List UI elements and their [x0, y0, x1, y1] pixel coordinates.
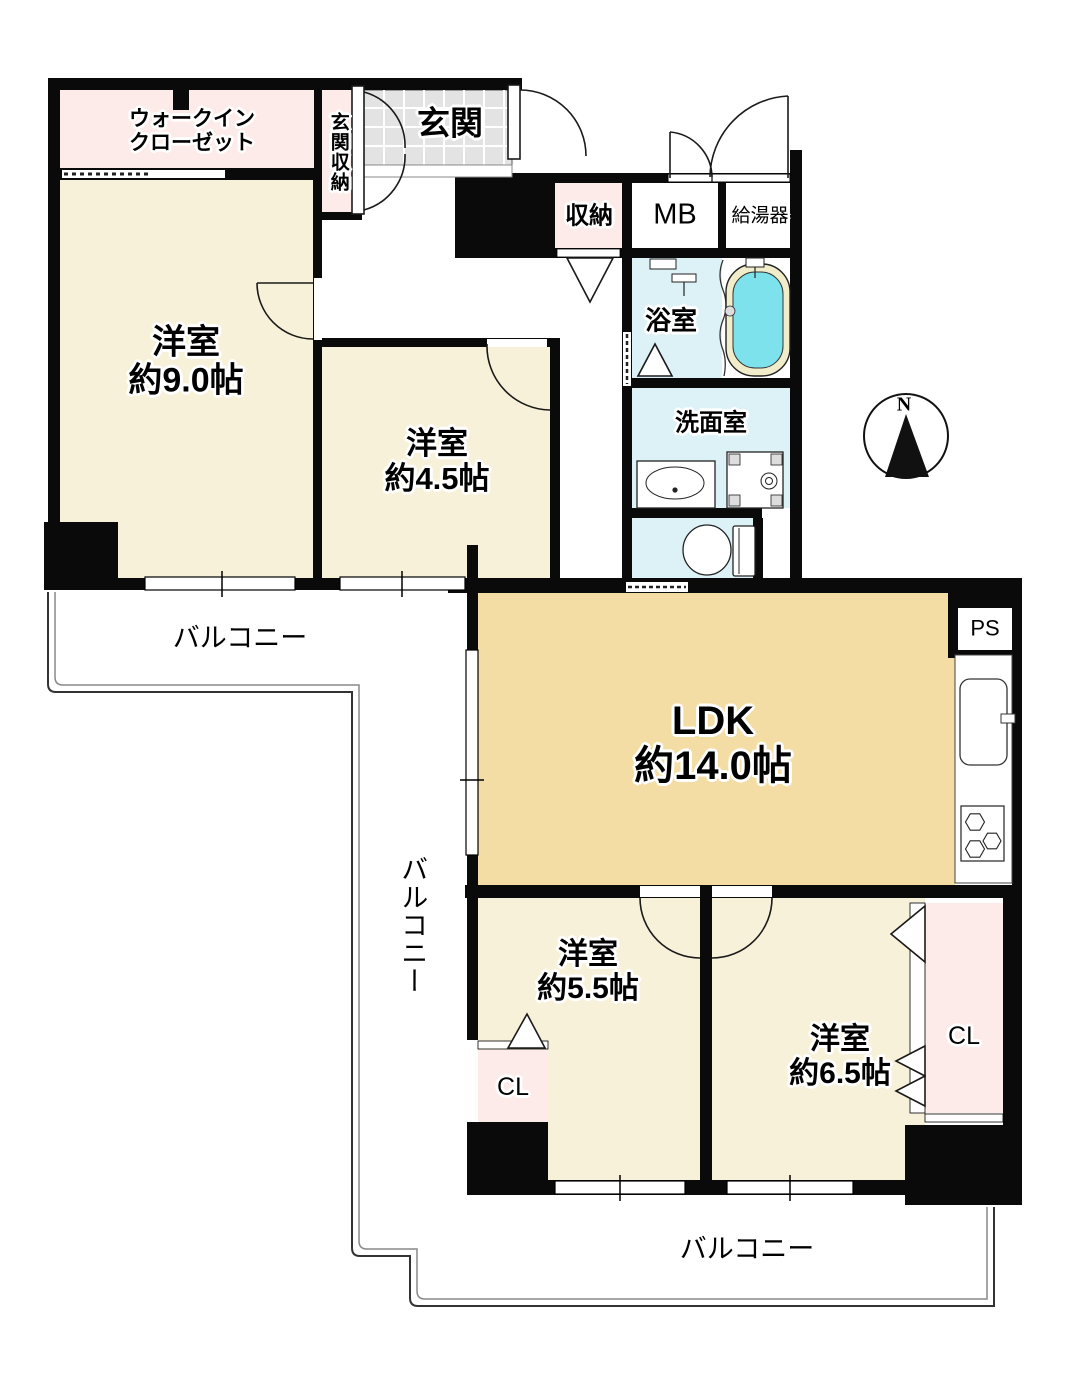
tub-faucet	[746, 258, 764, 267]
kitchen-sink	[960, 679, 1007, 765]
bath-faucet	[672, 274, 696, 282]
storage-label: 収納	[565, 202, 613, 229]
closet-large-label: CL	[948, 1022, 980, 1050]
floor-plan-drawing	[0, 0, 1066, 1375]
water-heater-label: 給湯器	[731, 205, 788, 226]
genkan-storage-label: 玄関収納	[327, 112, 348, 192]
washroom-label: 洗面室	[675, 409, 747, 436]
genkan-door-leaf	[508, 85, 520, 159]
wic-label: ウォークインクローゼット	[129, 107, 255, 154]
closet-large-floor	[925, 903, 1003, 1113]
toilet	[683, 525, 731, 575]
floor-plan: ウォークインクローゼット 玄関収納 玄関 収納 MB 給湯器 浴室 洗面室 洋室…	[0, 0, 1066, 1375]
genkan-storage-door-leaf	[352, 86, 364, 214]
bath-shelf	[650, 259, 676, 269]
balcony-middle-label: バルコニー	[397, 855, 428, 995]
meter-box-label: MB	[653, 199, 697, 232]
room65-label: 洋室約6.5帖	[789, 1023, 891, 1091]
bathroom-label: 浴室	[645, 306, 697, 335]
balcony-bottom-label: バルコニー	[680, 1234, 814, 1265]
room9-label: 洋室約9.0帖	[128, 324, 243, 401]
room55-label: 洋室約5.5帖	[537, 938, 639, 1006]
ldk-label: LDK約14.0帖	[634, 699, 792, 789]
room45-label: 洋室約4.5帖	[384, 426, 489, 496]
compass-north-label: N	[897, 394, 911, 417]
balcony-left-label: バルコニー	[173, 623, 307, 654]
pipe-space-label: PS	[970, 617, 999, 642]
storage-folding-door	[567, 258, 613, 302]
closet-small-label: CL	[497, 1073, 529, 1101]
genkan-label: 玄関	[417, 104, 483, 141]
kitchen-faucet	[1001, 714, 1015, 723]
bathtub-water	[733, 272, 783, 368]
